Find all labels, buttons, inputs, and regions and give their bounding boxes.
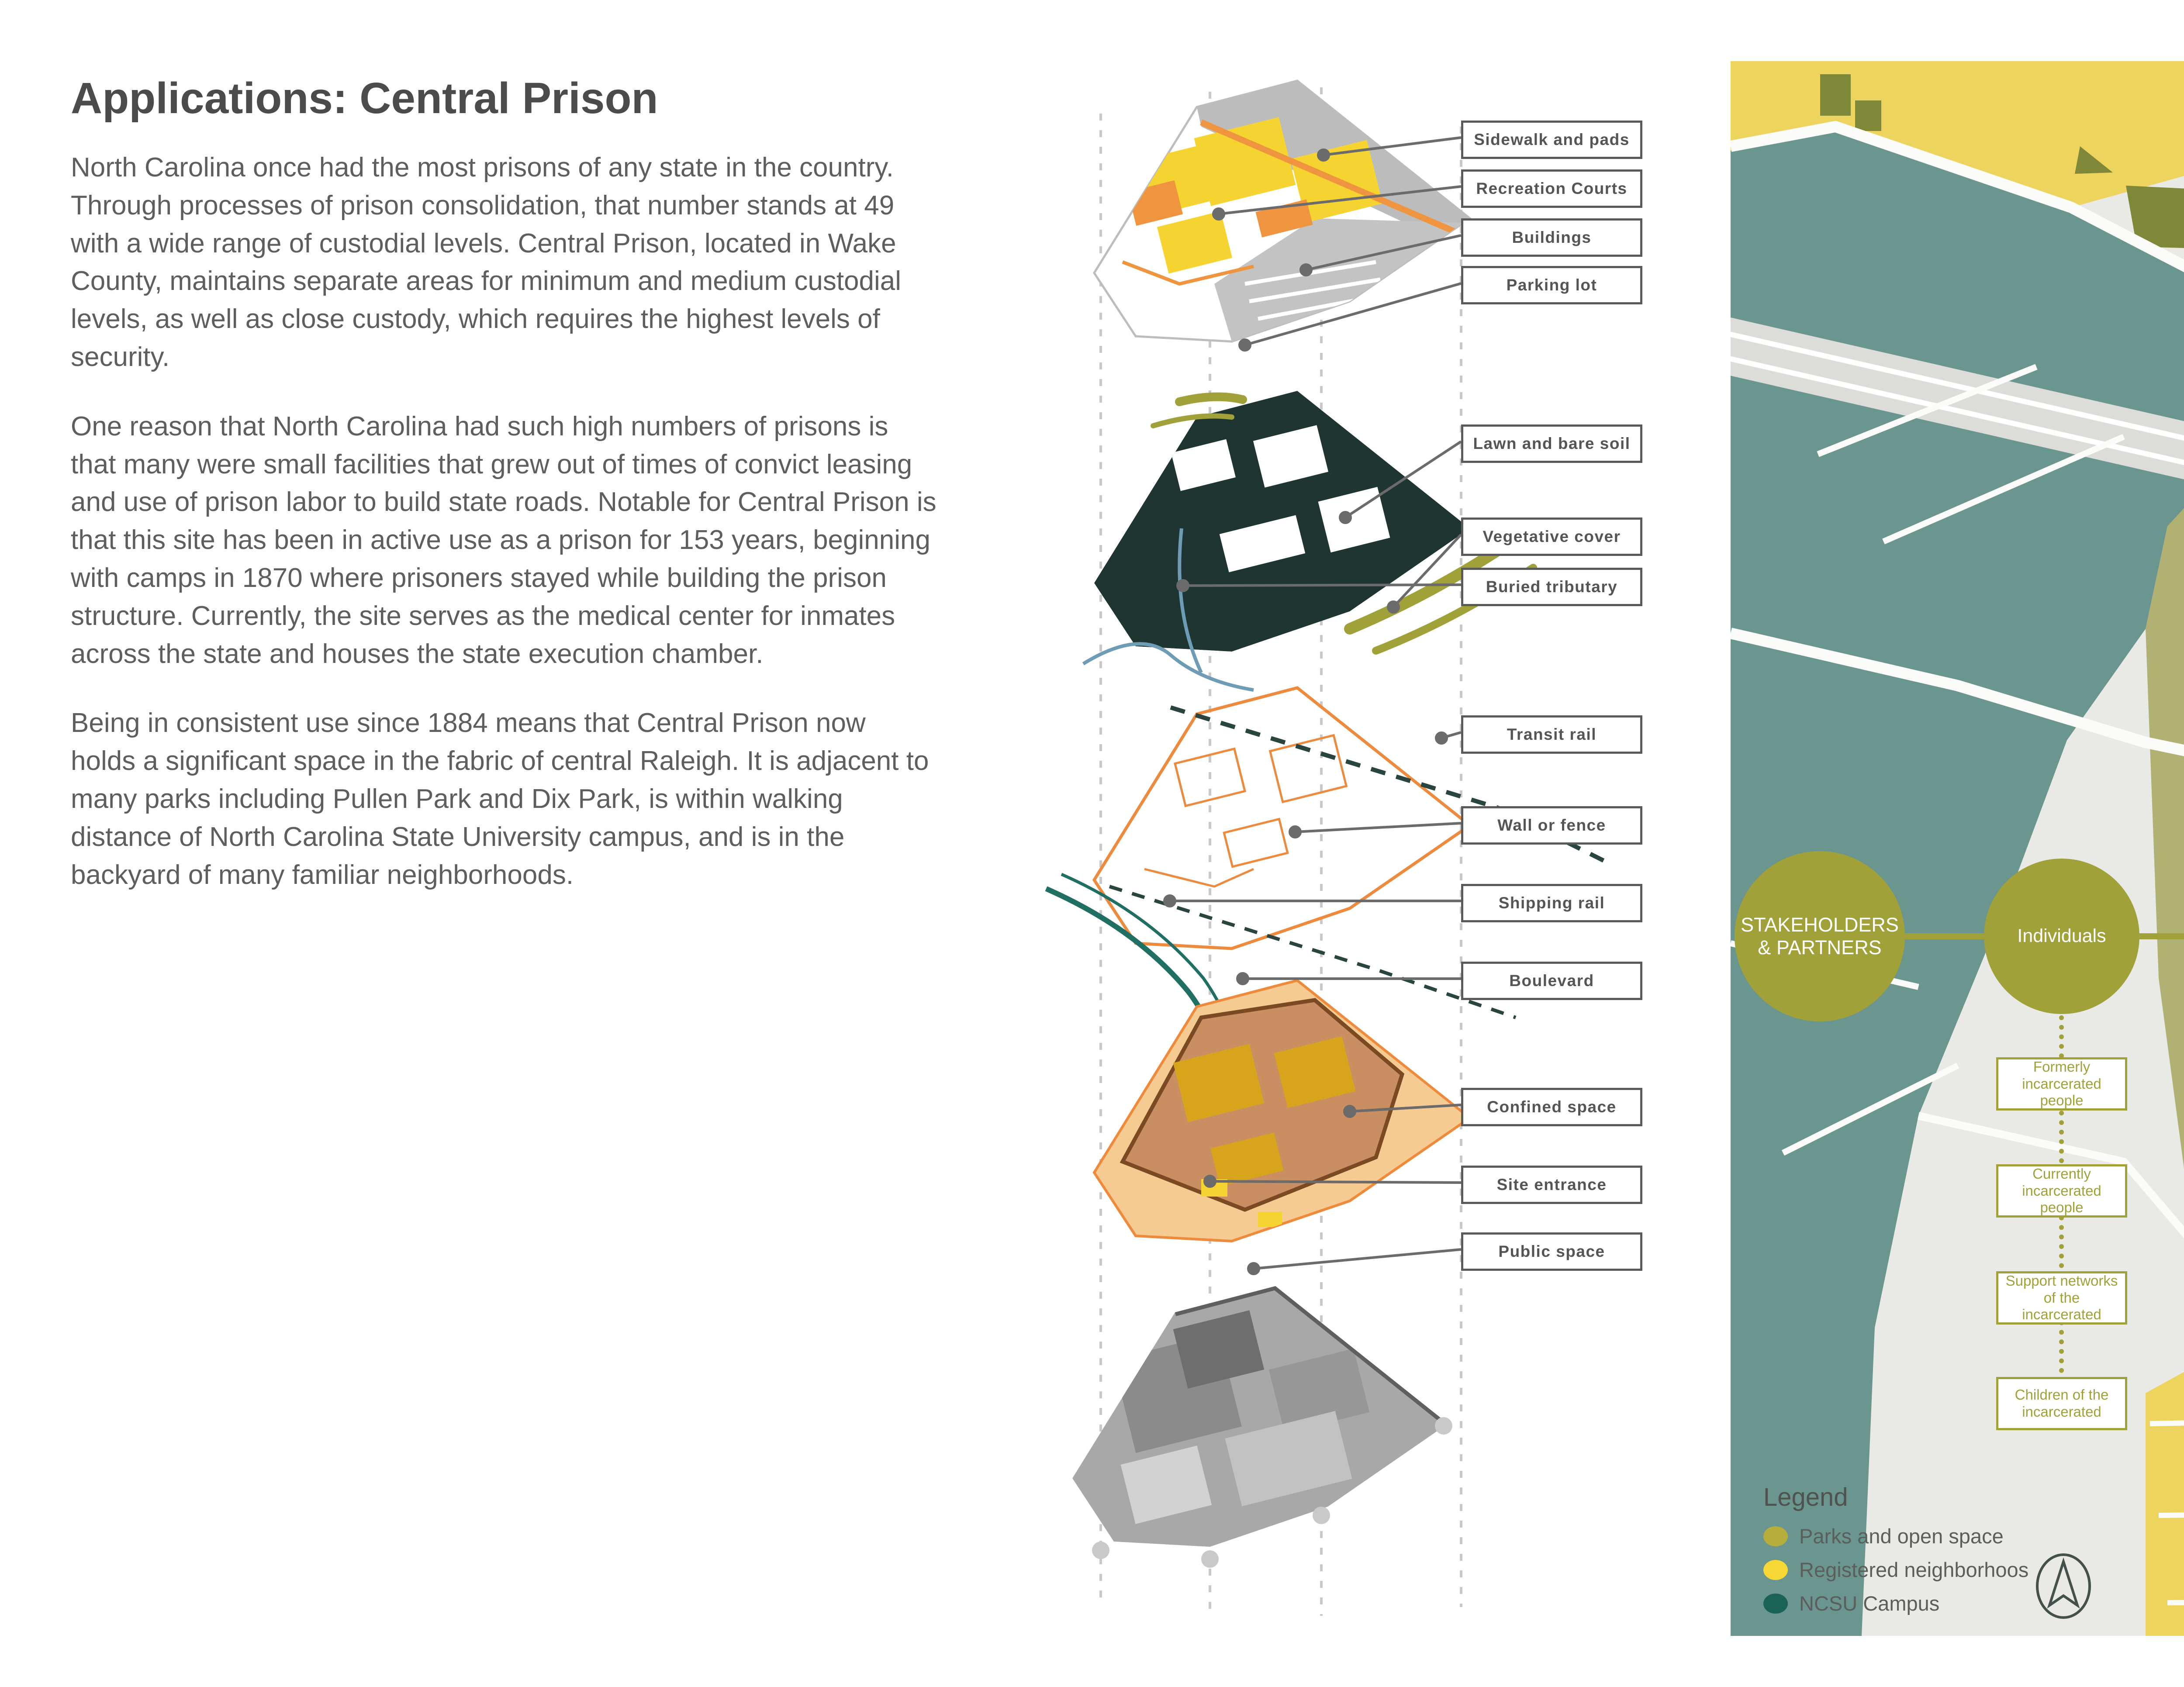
- diagram-label-wall-or-fence: Wall or fence: [1461, 806, 1642, 845]
- diagram-label-buildings: Buildings: [1461, 218, 1642, 257]
- diagram-label-buried-tributary: Buried tributary: [1461, 568, 1642, 606]
- legend-item-parks: Parks and open space: [1763, 1524, 2028, 1548]
- node-stakeholders-partners: STAKEHOLDERS & PARTNERS: [1735, 851, 1905, 1021]
- diagram-label-sidewalk-and-pads: Sidewalk and pads: [1461, 121, 1642, 159]
- diagram-label-site-entrance: Site entrance: [1461, 1166, 1642, 1204]
- ncsu-swatch-icon: [1763, 1594, 1788, 1614]
- item-support-networks: Support networks of the incarcerated: [1996, 1271, 2127, 1325]
- legend-title: Legend: [1763, 1483, 2028, 1512]
- legend-item-neighborhoods: Registered neighborhoos: [1763, 1558, 2028, 1582]
- legend-item-ncsu: NCSU Campus: [1763, 1591, 2028, 1615]
- node-individuals: Individuals: [1984, 859, 2139, 1014]
- map-legend: Legend Parks and open space Registered n…: [1763, 1483, 2028, 1625]
- legend-item-label: Registered neighborhoos: [1799, 1558, 2028, 1582]
- legend-item-label: NCSU Campus: [1799, 1591, 1939, 1615]
- diagram-label-lawn-and-bare-soil: Lawn and bare soil: [1461, 424, 1642, 463]
- page-title: Applications: Central Prison: [71, 73, 938, 124]
- item-children-of-incarcerated: Children of the incarcerated: [1996, 1377, 2127, 1430]
- portfolio-page: Applications: Central Prison North Carol…: [0, 0, 2184, 1687]
- diagram-label-parking-lot: Parking lot: [1461, 266, 1642, 304]
- item-formerly-incarcerated: Formerly incarcerated people: [1996, 1057, 2127, 1111]
- diagram-label-vegetative-cover: Vegetative cover: [1461, 517, 1642, 556]
- diagram-label-confined-space: Confined space: [1461, 1088, 1642, 1126]
- intro-text-block: Applications: Central Prison North Carol…: [71, 73, 938, 925]
- diagram-label-boulevard: Boulevard: [1461, 962, 1642, 1000]
- diagram-label-public-space: Public space: [1461, 1232, 1642, 1271]
- neighborhoods-swatch-icon: [1763, 1560, 1788, 1580]
- legend-item-label: Parks and open space: [1799, 1524, 2004, 1548]
- diagram-label-transit-rail: Transit rail: [1461, 715, 1642, 754]
- parks-swatch-icon: [1763, 1526, 1788, 1546]
- intro-paragraph-2: One reason that North Carolina had such …: [71, 408, 938, 673]
- diagram-label-recreation-courts: Recreation Courts: [1461, 169, 1642, 208]
- item-currently-incarcerated: Currently incarcerated people: [1996, 1164, 2127, 1218]
- intro-paragraph-1: North Carolina once had the most prisons…: [71, 149, 938, 376]
- diagram-label-shipping-rail: Shipping rail: [1461, 884, 1642, 922]
- intro-paragraph-3: Being in consistent use since 1884 means…: [71, 704, 938, 894]
- raleigh-context-map: STAKEHOLDERS & PARTNERS Individuals Neig…: [1731, 61, 2184, 1636]
